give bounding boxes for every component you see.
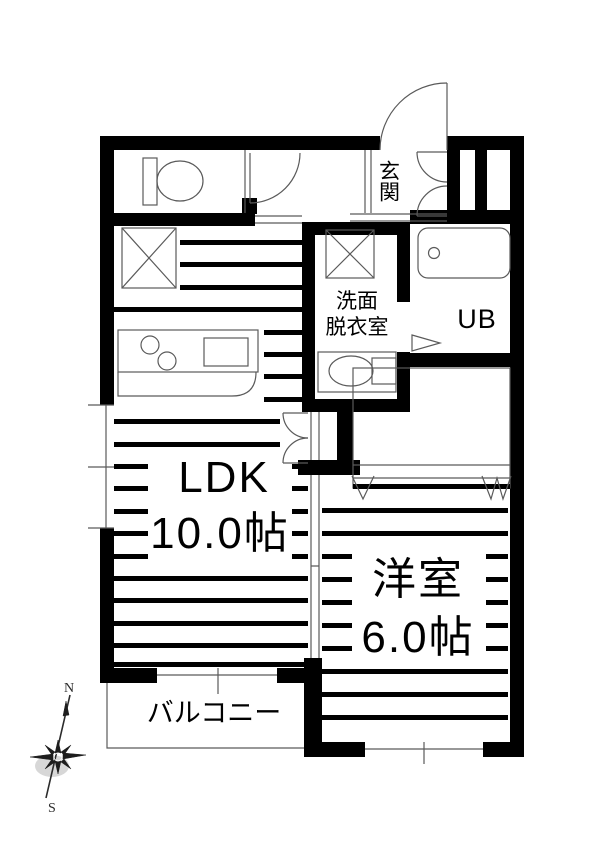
label-balcony: バルコニー bbox=[147, 698, 281, 728]
label-unit-bath: UB bbox=[457, 304, 497, 334]
entrance-door-arc bbox=[380, 83, 447, 150]
entrance-area bbox=[255, 83, 447, 223]
sliding-door bbox=[311, 475, 319, 658]
entrance-step-line bbox=[365, 150, 371, 213]
toilet-door-arc bbox=[250, 153, 300, 203]
shoe-cabinet-doors bbox=[417, 152, 447, 216]
kitchen-counter-icon bbox=[118, 330, 258, 396]
floor-plan-canvas: 玄関 洗面 脱衣室 UB LDK 10.0帖 洋室 6.0帖 バルコニー N S bbox=[0, 0, 610, 842]
floor-plan-page: 玄関 洗面 脱衣室 UB LDK 10.0帖 洋室 6.0帖 バルコニー N S bbox=[0, 0, 610, 842]
folding-door-icon bbox=[412, 335, 440, 351]
closet bbox=[352, 368, 511, 499]
label-ldk-area: 10.0帖 bbox=[150, 509, 290, 558]
western-room-window bbox=[365, 742, 483, 764]
label-entrance: 玄関 bbox=[377, 160, 400, 202]
ldk-closet-doors bbox=[283, 412, 319, 463]
washing-machine-box bbox=[326, 230, 374, 278]
label-washroom-line2: 脱衣室 bbox=[326, 316, 389, 339]
label-washroom-line1: 洗面 bbox=[336, 290, 378, 313]
toilet-icon bbox=[143, 158, 203, 205]
refrigerator-box bbox=[122, 228, 176, 288]
label-western-room-area: 6.0帖 bbox=[361, 613, 474, 662]
left-wall-window bbox=[88, 405, 114, 528]
label-ldk: LDK bbox=[178, 453, 270, 502]
toilet-room bbox=[143, 150, 300, 213]
bathtub-icon bbox=[418, 228, 510, 278]
ldk-balcony-window bbox=[157, 668, 277, 694]
compass-north-label: N bbox=[64, 681, 74, 696]
compass-south-label: S bbox=[48, 801, 56, 816]
washbasin-icon bbox=[318, 352, 396, 392]
hall-step-line bbox=[255, 216, 302, 223]
label-western-room: 洋室 bbox=[372, 555, 464, 604]
compass-rose: N S bbox=[30, 681, 86, 816]
